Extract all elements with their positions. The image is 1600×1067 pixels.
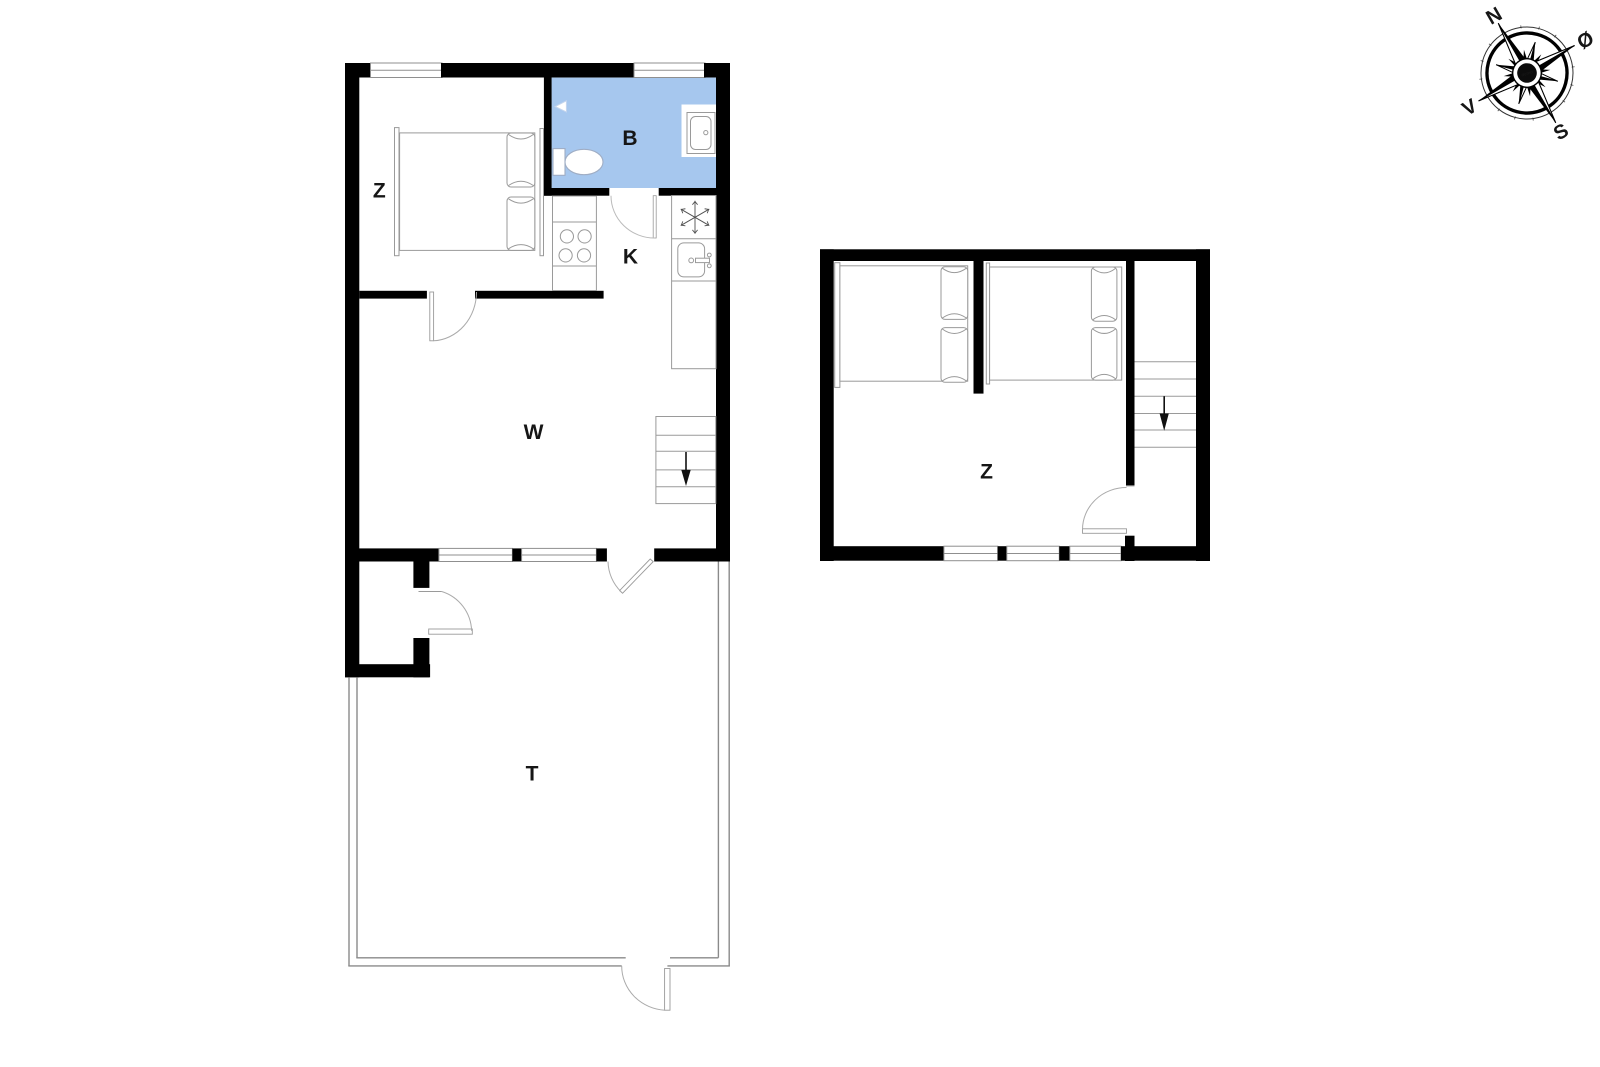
- svg-text:N: N: [1482, 3, 1506, 29]
- svg-text:T: T: [526, 762, 539, 785]
- svg-text:Ø: Ø: [1574, 27, 1598, 54]
- svg-text:Z: Z: [373, 179, 386, 202]
- svg-text:K: K: [623, 246, 638, 269]
- svg-text:W: W: [524, 421, 544, 444]
- svg-text:Z: Z: [980, 460, 993, 483]
- svg-text:S: S: [1550, 119, 1573, 145]
- svg-text:B: B: [622, 127, 637, 150]
- svg-text:V: V: [1458, 95, 1481, 121]
